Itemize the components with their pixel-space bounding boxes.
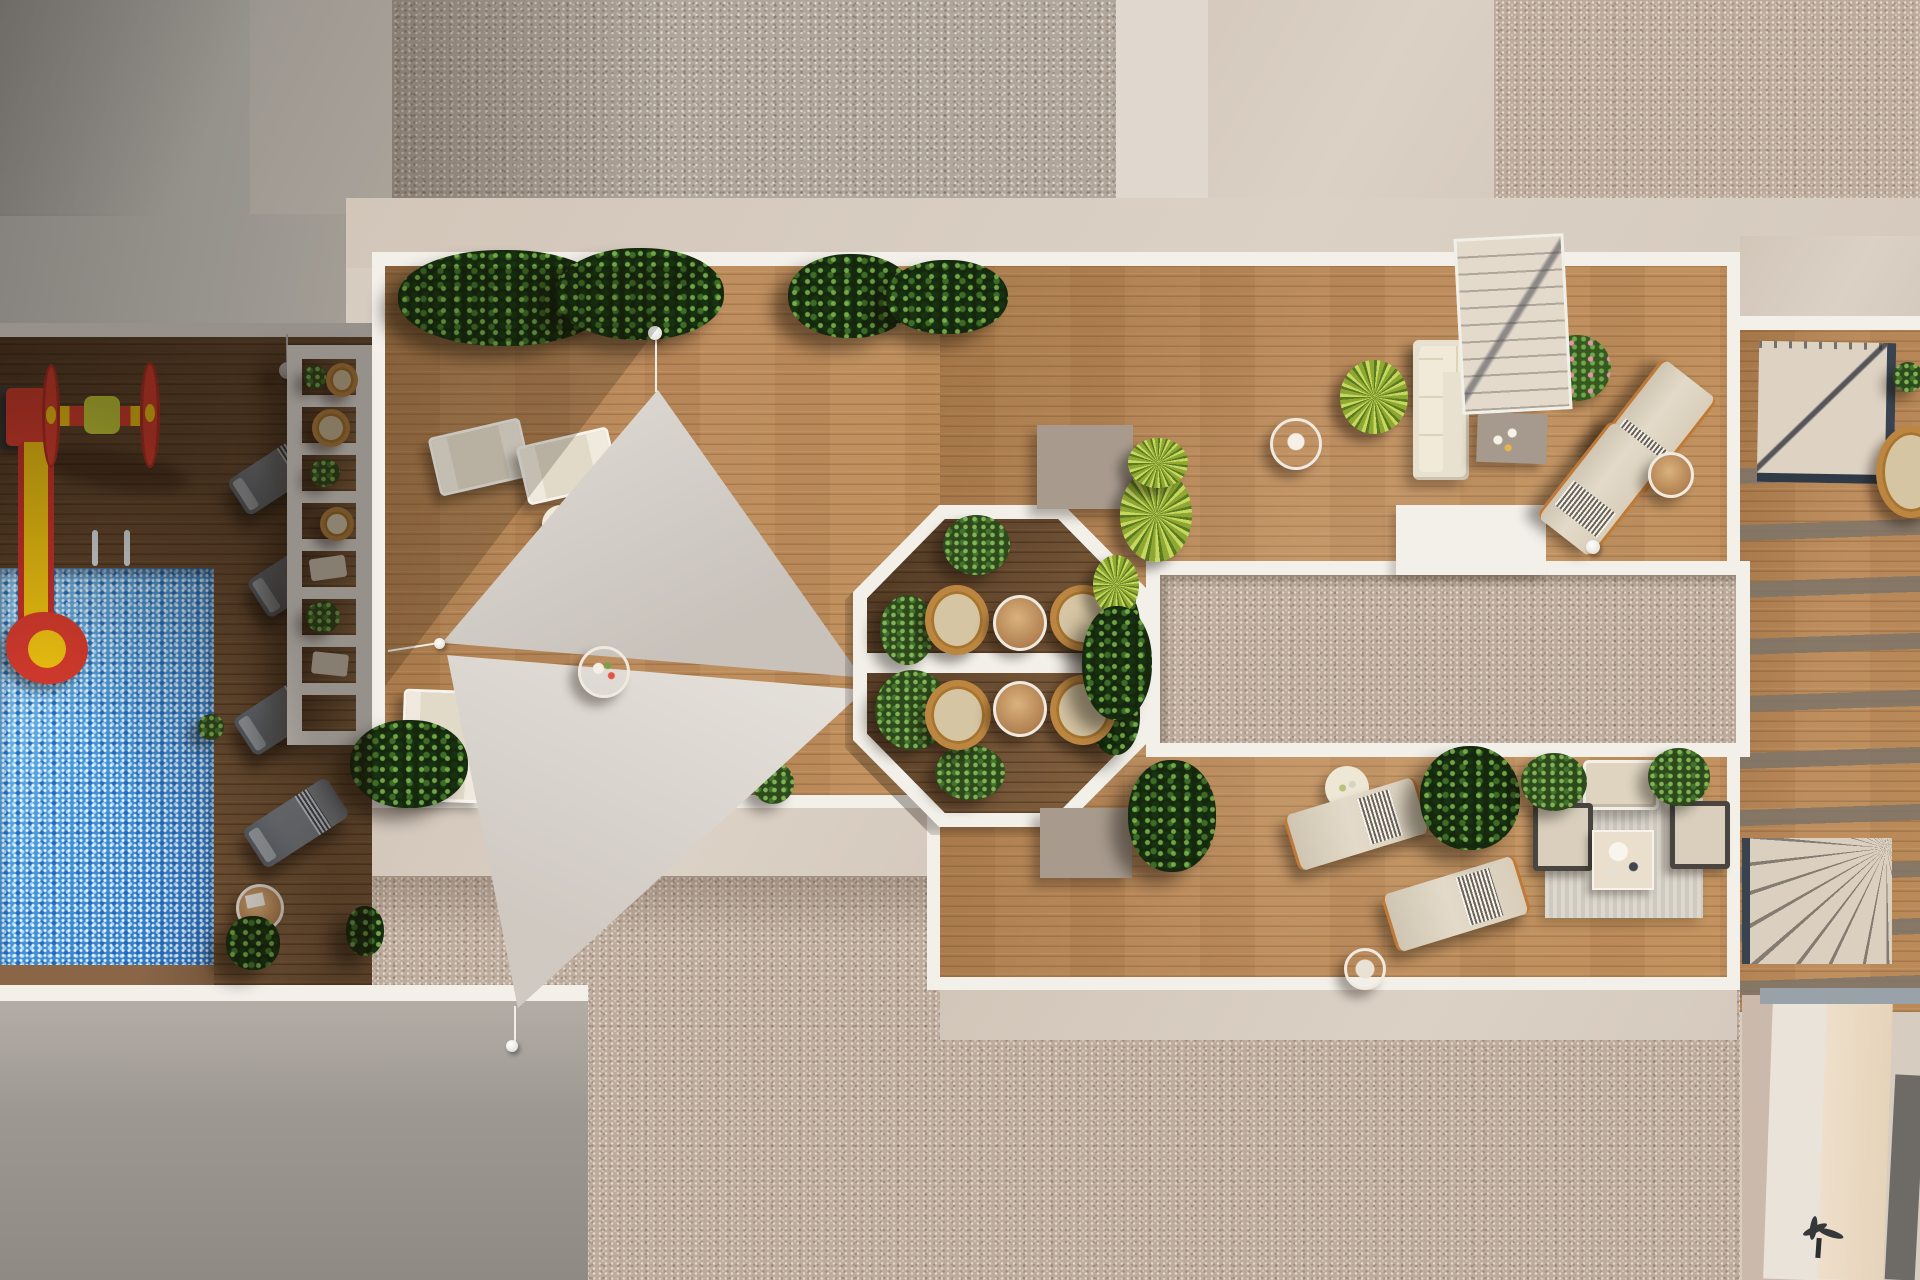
white-curb-left xyxy=(0,985,588,1001)
pergola-opening xyxy=(302,647,356,683)
pool-ladder-rail xyxy=(92,530,98,566)
octagon-bush xyxy=(943,515,1010,575)
dark-plant xyxy=(1082,606,1152,720)
spinner-hub xyxy=(46,406,56,424)
deck-frame-bottom-right xyxy=(927,977,1740,990)
coffee-table xyxy=(1476,412,1548,464)
pergola-opening xyxy=(302,455,356,491)
grass-plant xyxy=(1128,438,1188,488)
round-table xyxy=(993,681,1047,737)
sail-pole xyxy=(648,326,662,340)
white-bench xyxy=(1396,505,1546,575)
rooftop-render xyxy=(0,0,1920,1280)
palm-silhouette xyxy=(1800,1212,1846,1262)
rug-sofa xyxy=(1583,760,1659,810)
dark-plant xyxy=(1420,746,1520,850)
planter-tropical xyxy=(556,248,724,340)
pergola xyxy=(287,345,372,745)
sail-anchor xyxy=(434,638,445,649)
concrete-band-right xyxy=(1740,236,1920,320)
pergola-opening xyxy=(302,359,356,395)
pool-edge-strip xyxy=(0,963,214,985)
light-fixture xyxy=(1586,540,1600,554)
octagon-bush xyxy=(935,745,1005,800)
light-shadow xyxy=(258,372,276,387)
concrete-band-below-right xyxy=(940,990,1737,1040)
wall-cap xyxy=(1760,988,1920,1004)
side-table xyxy=(1648,452,1694,498)
grass-plant xyxy=(1340,360,1408,434)
planter-tropical xyxy=(350,720,468,808)
stairwell-fan xyxy=(1742,838,1892,964)
picnic-table xyxy=(578,646,630,698)
pergola-opening xyxy=(302,695,356,731)
pergola-opening xyxy=(302,551,356,587)
pergola-opening xyxy=(302,407,356,443)
rattan-chair xyxy=(925,680,991,750)
armchair xyxy=(1533,803,1593,871)
sail-pole xyxy=(506,1040,518,1052)
gravel-shadow xyxy=(392,0,672,200)
armchair xyxy=(1670,801,1730,869)
breakfast-table xyxy=(1592,830,1654,890)
side-table xyxy=(1344,948,1386,990)
bush xyxy=(346,906,384,956)
planter-tropical xyxy=(886,260,1008,334)
sunlit-path xyxy=(250,0,392,214)
skylight-gravel xyxy=(1160,575,1736,743)
sail-rope xyxy=(514,1006,516,1044)
stairwell-switchback xyxy=(1757,341,1896,484)
bush xyxy=(1521,753,1587,811)
spinner-drum xyxy=(84,396,120,434)
gray-roof-left xyxy=(0,214,346,326)
spinner-hub xyxy=(145,404,155,422)
plant-small-right xyxy=(1893,362,1920,392)
bush xyxy=(1648,748,1710,806)
potted-plant xyxy=(198,714,224,740)
sofa-cushions xyxy=(1419,350,1443,472)
wall-shadow-band xyxy=(1885,1074,1920,1280)
round-table xyxy=(993,595,1047,651)
bush xyxy=(226,916,280,970)
dark-plant xyxy=(1128,760,1216,872)
slide-end-inner xyxy=(28,630,66,668)
round-table xyxy=(1270,418,1322,470)
pool-ladder-rail xyxy=(124,530,130,566)
planter-square xyxy=(1037,425,1133,509)
stair-bulkhead xyxy=(1453,233,1572,415)
pergola-opening xyxy=(302,599,356,635)
slide-chute xyxy=(18,442,54,624)
rattan-chair xyxy=(925,585,989,655)
street-plane xyxy=(0,1001,588,1280)
planter-square xyxy=(1040,808,1132,878)
white-border-pool-top xyxy=(0,323,385,337)
pergola-opening xyxy=(302,503,356,539)
sail-rope xyxy=(655,340,657,392)
